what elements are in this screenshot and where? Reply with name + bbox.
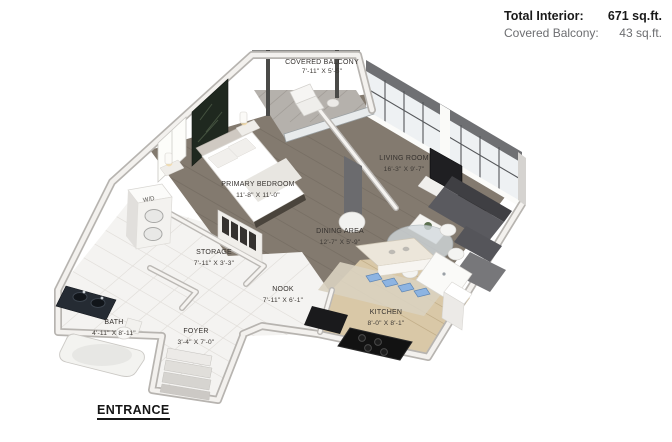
entrance-label: ENTRANCE <box>97 403 170 420</box>
svg-text:DINING AREA: DINING AREA <box>316 228 364 235</box>
svg-text:16'-3" X 9'-7": 16'-3" X 9'-7" <box>384 166 425 173</box>
svg-text:7'-11" X 3'-3": 7'-11" X 3'-3" <box>194 260 235 267</box>
svg-text:8'-0" X 8'-1": 8'-0" X 8'-1" <box>368 320 405 327</box>
svg-text:FOYER: FOYER <box>183 328 208 335</box>
svg-text:LIVING ROOM: LIVING ROOM <box>379 155 428 162</box>
svg-text:BATH: BATH <box>104 319 123 326</box>
svg-text:11'-8" X 11'-0": 11'-8" X 11'-0" <box>236 192 280 199</box>
svg-text:7'-11" X 5'-5": 7'-11" X 5'-5" <box>302 68 343 75</box>
total-interior-label: Total Interior: <box>504 8 584 25</box>
svg-text:4'-11" X 8'-11": 4'-11" X 8'-11" <box>92 330 136 337</box>
svg-text:3'-4" X 7'-0": 3'-4" X 7'-0" <box>178 339 215 346</box>
area-summary: Total Interior: 671 sq.ft. Covered Balco… <box>504 8 662 42</box>
entrance-steps <box>160 348 212 400</box>
bathtub <box>60 334 145 377</box>
total-interior-value: 671 sq.ft. <box>608 8 662 25</box>
floorplan-3d-render: COVERED BALCONY 7'-11" X 5'-5" LIVING RO… <box>0 0 672 442</box>
svg-text:STORAGE: STORAGE <box>196 249 232 256</box>
covered-balcony-label: Covered Balcony: <box>504 25 599 42</box>
covered-balcony-row: Covered Balcony: 43 sq.ft. <box>504 25 662 42</box>
svg-text:PRIMARY BEDROOM: PRIMARY BEDROOM <box>221 181 295 188</box>
svg-text:7'-11" X 6'-1": 7'-11" X 6'-1" <box>263 297 304 304</box>
svg-text:12'-7" X 5'-9": 12'-7" X 5'-9" <box>320 239 361 246</box>
floorplan-page: COVERED BALCONY 7'-11" X 5'-5" LIVING RO… <box>0 0 672 442</box>
total-interior-row: Total Interior: 671 sq.ft. <box>504 8 662 25</box>
svg-text:KITCHEN: KITCHEN <box>370 309 402 316</box>
svg-text:NOOK: NOOK <box>272 286 294 293</box>
washer-dryer <box>126 184 172 249</box>
svg-text:COVERED BALCONY: COVERED BALCONY <box>285 59 359 66</box>
covered-balcony-value: 43 sq.ft. <box>619 25 662 42</box>
room-label-covered-balcony: COVERED BALCONY 7'-11" X 5'-5" <box>285 59 359 75</box>
